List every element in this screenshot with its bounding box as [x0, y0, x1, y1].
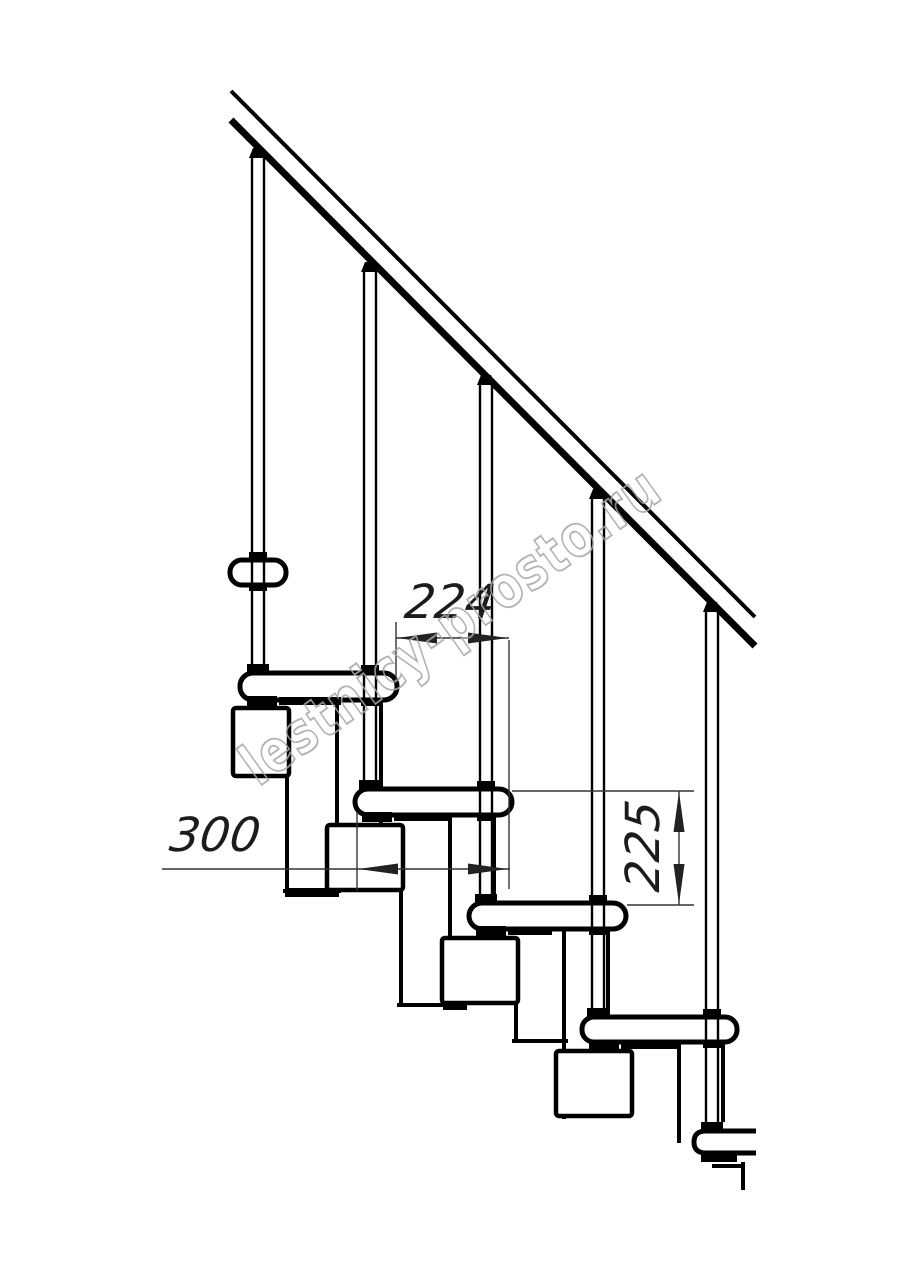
- collar: [589, 928, 607, 935]
- foot: [362, 812, 392, 822]
- collar: [477, 781, 495, 789]
- module-box-2: [327, 825, 403, 890]
- tread-3: [469, 903, 626, 929]
- foot: [701, 1152, 737, 1162]
- strip: [443, 1002, 467, 1010]
- collar: [249, 584, 267, 591]
- drawing-page: 224 300 225 lestnicy-prosto.ru: [0, 0, 914, 1280]
- module-box-3: [442, 938, 518, 1003]
- arrowhead-right: [468, 864, 508, 875]
- tread-4: [582, 1017, 737, 1042]
- collar: [249, 552, 267, 560]
- strip: [508, 927, 552, 935]
- strip: [394, 813, 452, 821]
- tread-5-partial: [694, 1131, 756, 1153]
- collar: [247, 664, 269, 673]
- dimension-label-225: 225: [616, 797, 671, 894]
- collar: [359, 780, 381, 789]
- collar: [475, 894, 497, 903]
- collar: [477, 814, 495, 821]
- staircase-drawing: 224 300 225 lestnicy-prosto.ru: [0, 0, 914, 1280]
- dimension-label-300: 300: [166, 808, 263, 863]
- foot: [247, 696, 277, 707]
- collar: [701, 1122, 723, 1131]
- collar: [587, 1008, 609, 1017]
- baluster-1: [252, 157, 264, 673]
- watermark-text: lestnicy-prosto.ru: [227, 453, 674, 799]
- foot: [476, 926, 506, 936]
- module-box-4: [556, 1051, 632, 1116]
- collar: [703, 1041, 721, 1048]
- collar: [703, 1009, 721, 1017]
- arrowhead-down: [674, 864, 685, 904]
- strip: [621, 1041, 681, 1049]
- arrowhead-up: [674, 792, 685, 832]
- tread-2: [355, 789, 512, 815]
- baluster-4: [592, 498, 604, 1017]
- top-landing-stub-tread: [230, 560, 286, 585]
- foot: [589, 1040, 619, 1050]
- collar: [589, 895, 607, 903]
- strip: [285, 888, 339, 897]
- baluster-5: [706, 611, 718, 1131]
